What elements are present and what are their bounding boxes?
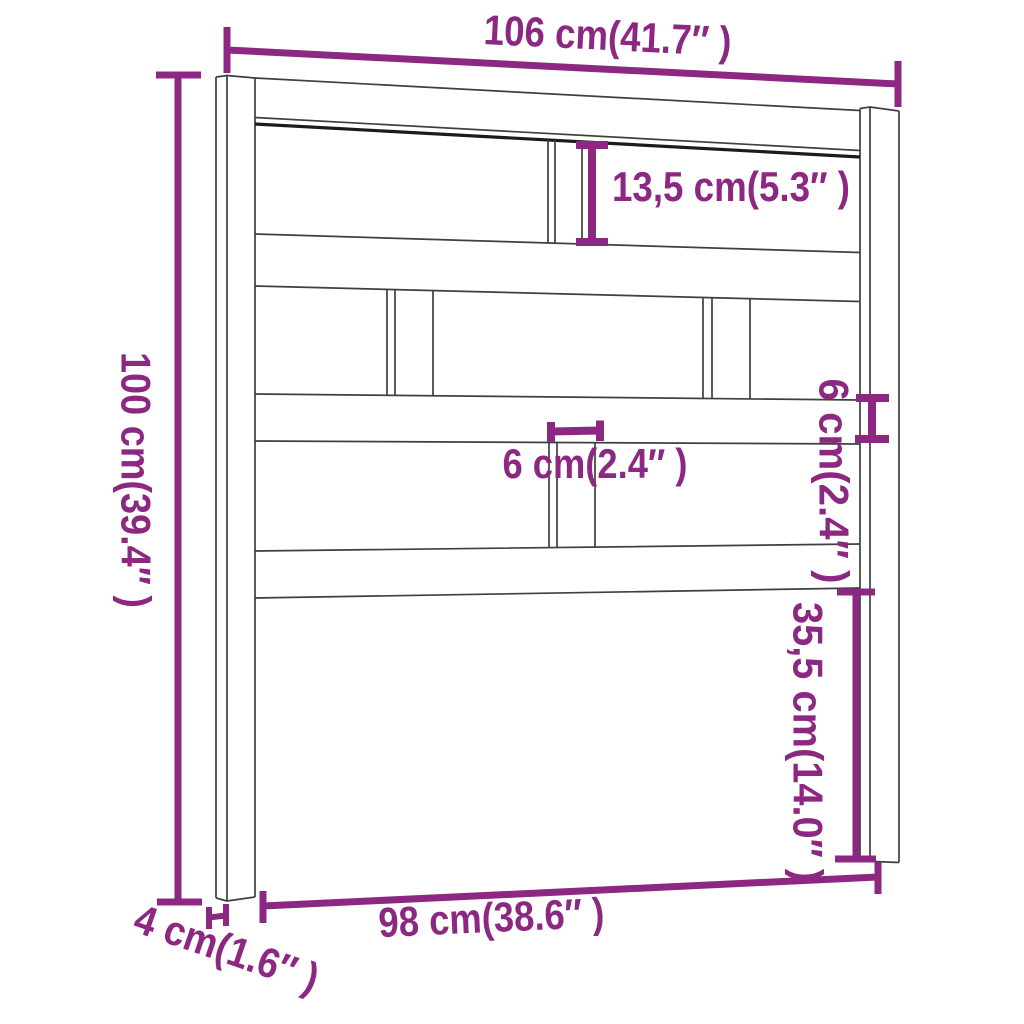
top-rail-bottom-edge <box>255 124 860 157</box>
dim-slat-width-line <box>551 421 600 442</box>
headboard-dimension-diagram: 106 cm(41.7″ ) 100 cm(39.4″ ) 13,5 cm(5.… <box>0 0 1024 1024</box>
dim-slat-width: 6 cm(2.4″ ) <box>503 421 688 488</box>
third-rail <box>255 394 860 444</box>
dim-overall-width-label: 106 cm(41.7″ ) <box>483 6 733 65</box>
dim-lower-gap-label: 35,5 cm(14.0″ ) <box>785 602 832 882</box>
dim-top-gap-height: 13,5 cm(5.3″ ) <box>576 145 850 242</box>
dim-post-depth: 4 cm(1.6″ ) <box>128 895 325 1002</box>
dim-rail-thickness-label: 6 cm(2.4″ ) <box>811 379 858 584</box>
dim-overall-height-label: 100 cm(39.4″ ) <box>113 352 160 608</box>
dim-slat-width-label: 6 cm(2.4″ ) <box>503 440 688 487</box>
dim-rail-thickness: 6 cm(2.4″ ) <box>811 379 890 584</box>
dim-overall-height: 100 cm(39.4″ ) <box>113 75 203 902</box>
dim-top-gap-line <box>576 145 608 242</box>
dim-lower-gap-height: 35,5 cm(14.0″ ) <box>785 592 877 882</box>
dimension-annotations: 106 cm(41.7″ ) 100 cm(39.4″ ) 13,5 cm(5.… <box>113 6 899 1002</box>
dim-overall-height-line <box>156 75 202 902</box>
dim-inner-width-label: 98 cm(38.6″ ) <box>377 889 605 946</box>
bottom-rail <box>255 544 860 598</box>
left-post <box>216 76 255 902</box>
slat-middle-left <box>387 289 433 396</box>
second-rail <box>255 234 860 302</box>
dim-overall-width: 106 cm(41.7″ ) <box>227 6 898 107</box>
slat-top-gap <box>548 140 582 244</box>
right-post <box>860 107 899 863</box>
slat-middle-right <box>703 298 750 400</box>
screenshot-root: 106 cm(41.7″ ) 100 cm(39.4″ ) 13,5 cm(5.… <box>0 0 1024 1024</box>
dim-top-gap-label: 13,5 cm(5.3″ ) <box>612 163 850 210</box>
